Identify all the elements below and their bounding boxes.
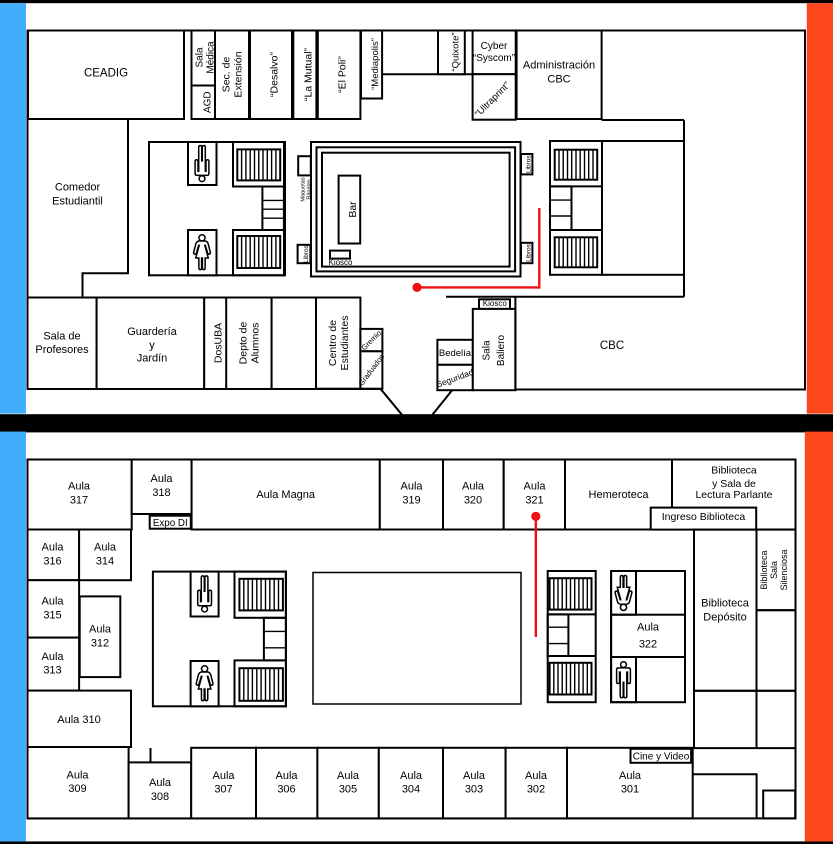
svg-text:322: 322: [639, 638, 657, 650]
svg-text:304: 304: [402, 784, 420, 796]
svg-text:Aula: Aula: [637, 621, 660, 633]
svg-text:Ingreso Biblioteca: Ingreso Biblioteca: [662, 511, 746, 523]
svg-text:“Quixote”: “Quixote”: [451, 32, 462, 71]
svg-text:Hemeroteca: Hemeroteca: [589, 489, 650, 501]
svg-text:Depto de: Depto de: [238, 322, 250, 365]
svg-text:Aula: Aula: [619, 770, 642, 782]
svg-text:Aula: Aula: [462, 481, 485, 493]
svg-text:Administración: Administración: [523, 60, 595, 72]
svg-text:Sala: Sala: [482, 340, 493, 360]
svg-text:Bedelía: Bedelía: [439, 348, 472, 359]
svg-text:308: 308: [151, 791, 169, 803]
svg-text:Baliero: Baliero: [496, 335, 507, 367]
svg-text:Kiosco: Kiosco: [328, 258, 353, 267]
svg-text:Aula: Aula: [89, 624, 112, 636]
svg-text:Alumnos: Alumnos: [250, 323, 262, 364]
svg-text:Depósito: Depósito: [703, 611, 746, 623]
svg-text:313: 313: [43, 665, 61, 677]
svg-text:Biblioteca: Biblioteca: [711, 465, 757, 477]
svg-text:DosUBA: DosUBA: [213, 323, 225, 363]
svg-text:Aula: Aula: [41, 542, 64, 554]
svg-text:Silenciosa: Silenciosa: [779, 549, 789, 590]
svg-text:Aula: Aula: [41, 651, 64, 663]
svg-text:CEADIG: CEADIG: [84, 68, 128, 80]
svg-text:Guardería: Guardería: [127, 326, 177, 338]
svg-text:Aula: Aula: [212, 770, 235, 782]
svg-text:Biblioteca: Biblioteca: [759, 550, 769, 589]
svg-text:Profesores: Profesores: [35, 344, 89, 356]
svg-text:316: 316: [43, 555, 61, 567]
svg-text:y: y: [149, 339, 155, 351]
svg-text:Jardín: Jardín: [137, 353, 168, 365]
svg-text:314: 314: [96, 555, 114, 567]
svg-text:Estudiantil: Estudiantil: [52, 196, 103, 208]
svg-text:305: 305: [339, 784, 357, 796]
svg-text:312: 312: [91, 637, 109, 649]
svg-text:318: 318: [152, 487, 170, 499]
svg-text:Libros: Libros: [303, 244, 310, 262]
svg-text:Bar: Bar: [347, 201, 359, 218]
svg-text:Aula 310: Aula 310: [57, 714, 100, 726]
svg-text:303: 303: [465, 784, 483, 796]
svg-text:“La Mutual”: “La Mutual”: [303, 47, 315, 101]
svg-text:Aula: Aula: [400, 481, 423, 493]
svg-text:Aula: Aula: [525, 770, 548, 782]
svg-text:317: 317: [70, 495, 88, 507]
svg-text:Aula: Aula: [337, 770, 360, 782]
svg-text:Libros: Libros: [526, 243, 533, 261]
svg-text:“Syscom”: “Syscom”: [473, 53, 515, 64]
svg-text:Aula: Aula: [68, 481, 91, 493]
svg-text:306: 306: [277, 784, 295, 796]
svg-text:Biblioteca: Biblioteca: [701, 598, 750, 610]
svg-text:Aula: Aula: [149, 777, 172, 789]
svg-text:Aula: Aula: [66, 769, 89, 781]
svg-text:Sala: Sala: [195, 47, 206, 67]
svg-text:Cine y Video: Cine y Video: [633, 752, 690, 763]
svg-text:Extensión: Extensión: [233, 51, 245, 97]
svg-text:320: 320: [464, 495, 482, 507]
svg-text:Aula: Aula: [523, 481, 546, 493]
svg-text:302: 302: [527, 784, 545, 796]
svg-text:“Mediapolis”: “Mediapolis”: [370, 38, 381, 90]
svg-text:Sala de: Sala de: [43, 331, 80, 343]
svg-text:Lectura Parlante: Lectura Parlante: [695, 489, 772, 501]
svg-text:AGD: AGD: [203, 91, 214, 113]
svg-text:Estudiantes: Estudiantes: [339, 316, 351, 371]
svg-text:CBC: CBC: [547, 74, 570, 86]
svg-text:Aula: Aula: [150, 473, 173, 485]
svg-text:Libros: Libros: [526, 155, 533, 173]
svg-text:Sala: Sala: [769, 561, 779, 579]
svg-text:Aula: Aula: [41, 596, 64, 608]
svg-text:315: 315: [43, 609, 61, 621]
svg-text:Expo DI: Expo DI: [153, 518, 188, 529]
svg-text:Comedor: Comedor: [55, 182, 101, 194]
svg-text:Aula: Aula: [400, 770, 423, 782]
svg-text:Cyber: Cyber: [481, 41, 508, 52]
svg-text:Centro de: Centro de: [327, 320, 339, 366]
svg-text:“Desalvo”: “Desalvo”: [269, 52, 281, 97]
svg-text:Aula Magna: Aula Magna: [256, 489, 316, 501]
svg-text:321: 321: [525, 495, 543, 507]
svg-text:319: 319: [402, 495, 420, 507]
svg-text:“El Poli”: “El Poli”: [337, 56, 349, 93]
svg-text:CBC: CBC: [600, 340, 624, 352]
svg-text:309: 309: [68, 783, 86, 795]
svg-text:Aula: Aula: [463, 770, 486, 782]
svg-text:307: 307: [214, 784, 232, 796]
svg-text:Aula: Aula: [94, 542, 117, 554]
svg-text:Sec. de: Sec. de: [221, 57, 233, 93]
svg-text:301: 301: [621, 784, 639, 796]
svg-text:Kiosco: Kiosco: [483, 299, 508, 308]
svg-text:Aula: Aula: [275, 770, 298, 782]
